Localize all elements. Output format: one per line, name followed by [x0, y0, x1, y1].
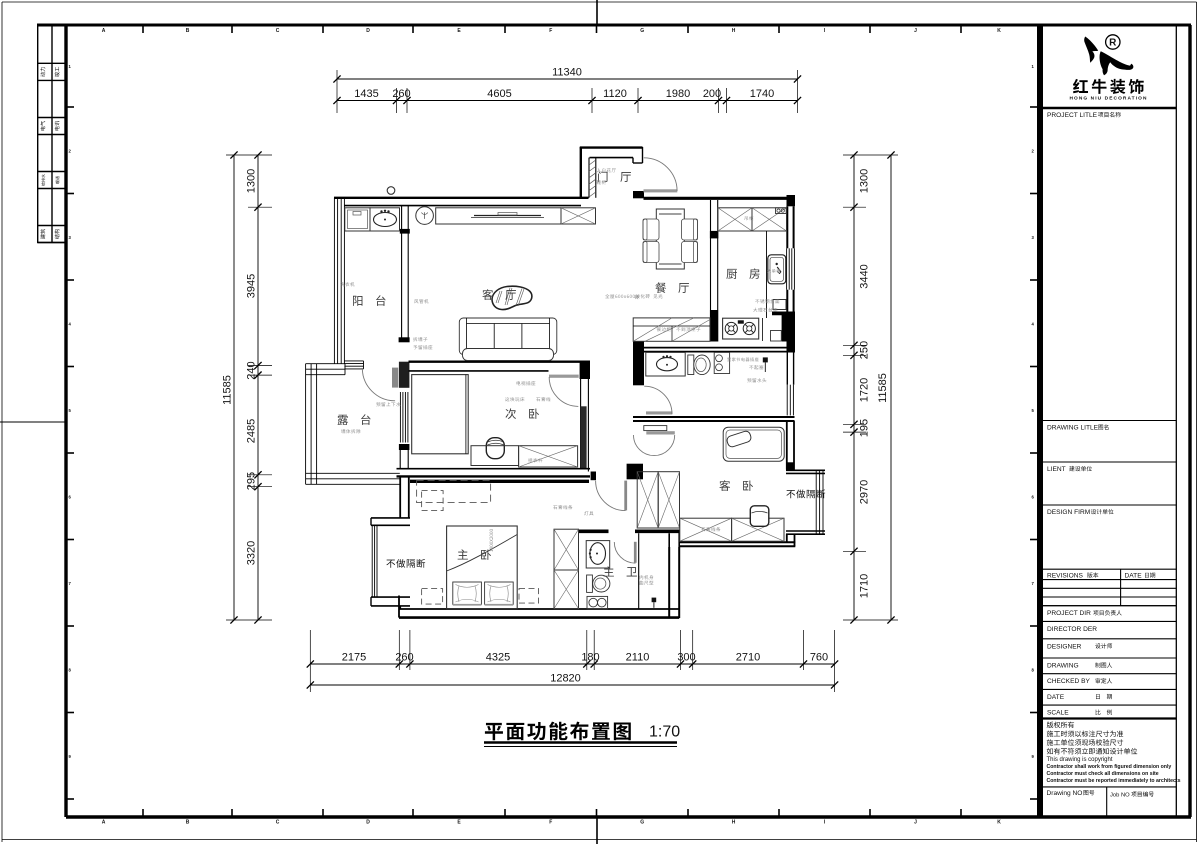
- svg-text:180: 180: [581, 652, 599, 664]
- svg-text:LIENT: LIENT: [1047, 466, 1066, 473]
- svg-text:2485: 2485: [246, 419, 258, 443]
- svg-text:760: 760: [810, 652, 828, 664]
- svg-text:F: F: [549, 820, 552, 826]
- svg-text:1:70: 1:70: [649, 724, 680, 741]
- svg-text:H: H: [732, 28, 736, 34]
- svg-text:REVISIONS: REVISIONS: [1047, 573, 1084, 580]
- svg-text:R: R: [1109, 38, 1117, 49]
- svg-text:F: F: [549, 28, 552, 34]
- svg-text:1710: 1710: [859, 574, 871, 598]
- svg-text:3440: 3440: [859, 264, 871, 288]
- svg-text:1120: 1120: [603, 88, 627, 100]
- svg-text:G: G: [640, 28, 644, 34]
- svg-text:C: C: [276, 820, 280, 826]
- svg-text:2970: 2970: [859, 480, 871, 504]
- svg-text:DATE: DATE: [1047, 694, 1065, 701]
- svg-text:260: 260: [392, 88, 410, 100]
- svg-text:11585: 11585: [222, 375, 234, 405]
- svg-text:295: 295: [246, 472, 258, 490]
- svg-text:PROJECT DIR: PROJECT DIR: [1047, 610, 1091, 617]
- svg-text:250: 250: [859, 341, 871, 359]
- svg-text:Drawing NO: Drawing NO: [1047, 790, 1083, 797]
- svg-text:DESIGN FIRM: DESIGN FIRM: [1047, 509, 1090, 516]
- svg-text:260: 260: [395, 652, 413, 664]
- svg-text:G: G: [640, 820, 644, 826]
- svg-text:1980: 1980: [666, 88, 690, 100]
- svg-text:CHECKED BY: CHECKED BY: [1047, 678, 1090, 685]
- svg-text:2175: 2175: [342, 652, 366, 664]
- svg-text:1300: 1300: [859, 169, 871, 193]
- svg-text:11585: 11585: [877, 373, 889, 403]
- svg-text:300: 300: [677, 652, 695, 664]
- svg-text:HONG NIU DECORATION: HONG NIU DECORATION: [1069, 96, 1147, 102]
- svg-text:A: A: [102, 820, 106, 826]
- svg-text:Job NO: Job NO: [1110, 793, 1130, 799]
- svg-text:1435: 1435: [354, 88, 378, 100]
- svg-text:Contractor shall work from fig: Contractor shall work from figured dimen…: [1047, 764, 1172, 770]
- svg-text:195: 195: [859, 419, 871, 437]
- svg-text:1300: 1300: [246, 169, 258, 193]
- svg-text:200: 200: [703, 88, 721, 100]
- svg-text:PROJECT LITLE: PROJECT LITLE: [1047, 112, 1098, 119]
- svg-text:D: D: [366, 820, 370, 826]
- svg-text:C: C: [276, 28, 280, 34]
- svg-text:DRAWING: DRAWING: [1047, 663, 1079, 670]
- svg-text:3320: 3320: [246, 541, 258, 565]
- svg-text:2110: 2110: [626, 652, 650, 664]
- svg-text:2710: 2710: [736, 652, 760, 664]
- svg-text:11340: 11340: [552, 67, 582, 79]
- svg-text:Contractor must be reported im: Contractor must be reported immediately …: [1047, 778, 1181, 784]
- svg-text:1740: 1740: [750, 88, 774, 100]
- svg-text:4605: 4605: [487, 88, 511, 100]
- svg-text:12820: 12820: [550, 673, 581, 685]
- svg-text:J: J: [914, 28, 917, 34]
- svg-text:H: H: [732, 820, 736, 826]
- svg-text:D: D: [366, 28, 370, 34]
- svg-text:K: K: [997, 28, 1001, 34]
- svg-text:DRAWING LITLE: DRAWING LITLE: [1047, 425, 1099, 432]
- svg-text:A: A: [102, 28, 106, 34]
- svg-text:240: 240: [246, 361, 258, 379]
- svg-text:DESIGNER: DESIGNER: [1047, 643, 1082, 650]
- svg-text:1720: 1720: [859, 378, 871, 402]
- svg-text:4325: 4325: [486, 652, 510, 664]
- svg-text:DATE: DATE: [1125, 573, 1143, 580]
- svg-text:J: J: [914, 820, 917, 826]
- svg-text:Contractor must check all dime: Contractor must check all dimensions on …: [1047, 771, 1159, 777]
- svg-text:B: B: [186, 28, 190, 34]
- svg-text:DIRECTOR DER: DIRECTOR DER: [1047, 626, 1097, 633]
- svg-text:3945: 3945: [246, 274, 258, 298]
- svg-text:K: K: [997, 820, 1001, 826]
- svg-text:B: B: [186, 820, 190, 826]
- svg-text:SCALE: SCALE: [1047, 710, 1069, 717]
- svg-text:This drawing is copyright: This drawing is copyright: [1047, 757, 1113, 763]
